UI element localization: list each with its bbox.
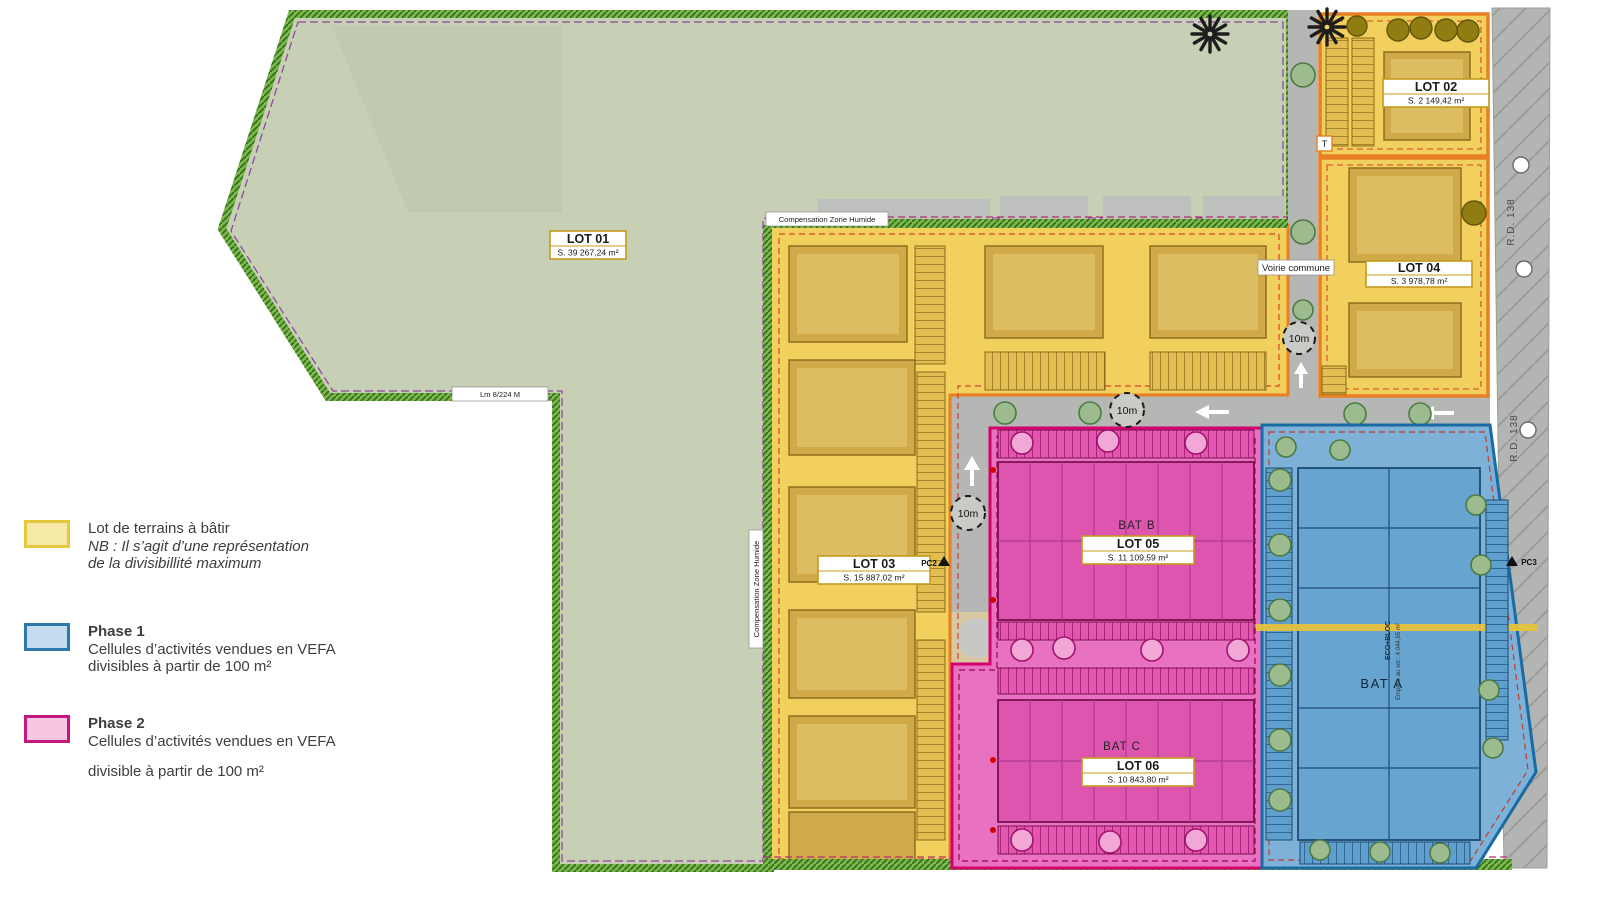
svg-text:LOT 01: LOT 01	[567, 232, 609, 246]
survey-point	[1520, 422, 1536, 438]
terrain-swatch	[24, 520, 70, 548]
compensation-label-top: Compensation Zone Humide	[766, 212, 888, 226]
phase1-title: Phase 1	[88, 623, 336, 641]
svg-text:LOT 02: LOT 02	[1415, 80, 1457, 94]
svg-text:PC2: PC2	[921, 559, 937, 568]
svg-text:LOT 04: LOT 04	[1398, 261, 1440, 275]
lot05-label: LOT 05 S. 11 109,59 m²	[1082, 536, 1194, 564]
svg-text:S. 10 843,80 m²: S. 10 843,80 m²	[1107, 775, 1168, 785]
lot04-label: LOT 04 S. 3 978,78 m²	[1366, 261, 1472, 287]
svg-text:LOT 06: LOT 06	[1117, 759, 1159, 773]
voirie-commune-label: Voirie commune	[1258, 260, 1334, 275]
phase2-swatch	[24, 715, 70, 743]
svg-text:S. 11 109,59 m²: S. 11 109,59 m²	[1108, 553, 1169, 563]
zone-lot04: LOT 04 S. 3 978,78 m²	[1320, 158, 1488, 396]
lot03-label: LOT 03 S. 15 887,02 m²	[818, 556, 930, 584]
terrain-note-2: de la divisibillité maximum	[88, 555, 309, 573]
legend-item-phase1: Phase 1 Cellules d’activités vendues en …	[24, 623, 336, 676]
terrain-note-1: NB : Il s’agit d’une représentation	[88, 538, 309, 556]
svg-text:10m: 10m	[1289, 333, 1310, 345]
lot01-label: LOT 01 S. 39 267,24 m²	[550, 231, 626, 259]
bat-b-label: BAT B	[1118, 520, 1155, 532]
phase2-line-2: divisible à partir de 100 m²	[88, 763, 336, 781]
terrain-title: Lot de terrains à bâtir	[88, 520, 309, 538]
eco-bloc-label: ECO+BLOC	[1385, 621, 1392, 660]
survey-point	[1513, 157, 1529, 173]
site-plan-page: R.D. 138 R.D. 138	[0, 0, 1599, 902]
svg-text:10m: 10m	[958, 508, 979, 520]
limit-label: Lm 8/224 M	[452, 387, 548, 401]
svg-text:S. 15 887,02 m²: S. 15 887,02 m²	[843, 573, 904, 583]
lot02-label: LOT 02 S. 2 149,42 m²	[1383, 79, 1489, 107]
rd138-label: R.D. 138	[1509, 414, 1520, 461]
svg-text:LOT 05: LOT 05	[1117, 537, 1159, 551]
svg-text:LOT 03: LOT 03	[853, 557, 895, 571]
lot04-tree	[1462, 201, 1486, 225]
svg-text:S. 2 149,42 m²: S. 2 149,42 m²	[1408, 96, 1465, 106]
svg-text:10m: 10m	[1117, 405, 1138, 417]
legend-item-terrain: Lot de terrains à bâtir NB : Il s’agit d…	[24, 520, 309, 573]
svg-text:T: T	[1322, 139, 1328, 149]
svg-text:S. 3 978,78 m²: S. 3 978,78 m²	[1391, 276, 1448, 286]
svg-text:Lm 8/224 M: Lm 8/224 M	[480, 390, 520, 399]
phase1-line-1: Cellules d’activités vendues en VEFA	[88, 641, 336, 659]
compensation-label-side: Compensation Zone Humide	[749, 530, 763, 648]
svg-text:Compensation Zone Humide: Compensation Zone Humide	[779, 215, 876, 224]
phase2-title: Phase 2	[88, 715, 336, 733]
t-marker: T	[1317, 136, 1332, 151]
phase1-swatch	[24, 623, 70, 651]
phase1-line-2: divisibles à partir de 100 m²	[88, 658, 336, 676]
phase2-line-1: Cellules d’activités vendues en VEFA	[88, 733, 336, 751]
zone-phase2: BAT B LOT 05 S. 11 109,59 m² BAT C LOT 0…	[952, 428, 1262, 868]
bat-c-label: BAT C	[1103, 741, 1141, 753]
zone-phase1: BAT A ECO+BLOC Emprise au sol : 4 044,95…	[1256, 425, 1538, 868]
emprise-label: Emprise au sol : 4 044,95 m²	[1396, 623, 1402, 700]
svg-text:S. 39 267,24 m²: S. 39 267,24 m²	[557, 248, 618, 258]
svg-text:Compensation Zone Humide: Compensation Zone Humide	[752, 541, 761, 638]
svg-text:PC3: PC3	[1521, 558, 1537, 567]
legend-item-phase2: Phase 2 Cellules d’activités vendues en …	[24, 715, 336, 781]
rd138-label: R.D. 138	[1506, 198, 1517, 245]
survey-point	[1516, 261, 1532, 277]
lot06-label: LOT 06 S. 10 843,80 m²	[1082, 758, 1194, 786]
svg-text:Voirie commune: Voirie commune	[1262, 263, 1330, 274]
